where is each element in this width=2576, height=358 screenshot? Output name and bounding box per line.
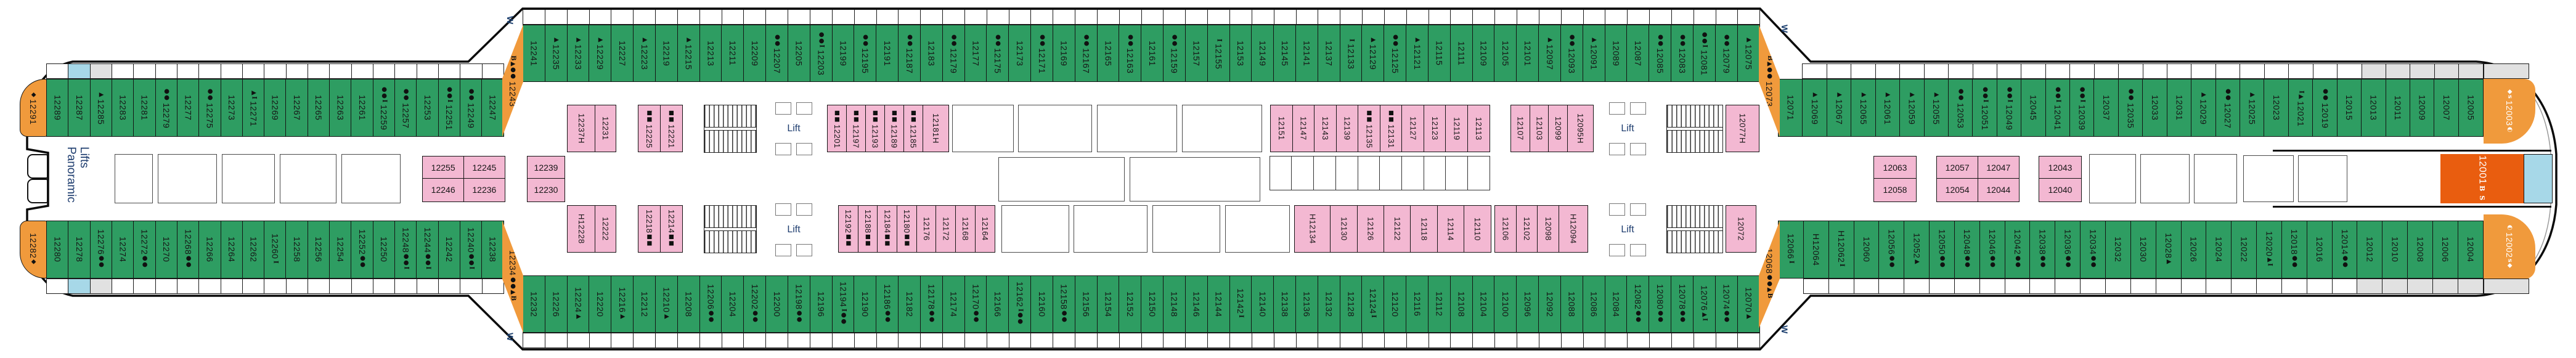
cabin-12035[interactable]: ●●12035 xyxy=(2118,79,2143,137)
cabin-12214[interactable]: 12214■■ xyxy=(660,205,683,253)
cabin-12056[interactable]: 12056●● xyxy=(1878,221,1904,279)
cabin-12248[interactable]: 12248●●Ⅰ xyxy=(394,221,417,279)
cabin-symbols: ■■ xyxy=(853,110,859,123)
cabin-12024[interactable]: 12024 xyxy=(2206,221,2232,279)
cabin-12129[interactable]: ▲12129 xyxy=(1361,25,1384,82)
cabin-12054[interactable]: 12054 xyxy=(1936,178,1978,202)
cabin-12095[interactable]: 12095H xyxy=(1567,105,1594,152)
cabin-12001[interactable]: 12001B S xyxy=(2440,154,2524,203)
cabin-12256[interactable]: 12256 xyxy=(308,221,330,279)
cabin-12091[interactable]: ▲12091 xyxy=(1583,25,1605,82)
balcony-cell xyxy=(1075,9,1098,25)
cabin-12122[interactable]: 12122 xyxy=(1384,205,1411,253)
cabin-12246[interactable]: 12246 xyxy=(422,178,464,202)
cabin-12102[interactable]: 12102 xyxy=(1516,205,1538,253)
cabin-12101[interactable]: 12101 xyxy=(1516,25,1539,82)
cabin-12080[interactable]: 12080●● xyxy=(1649,275,1671,333)
cabin-12098[interactable]: 12098 xyxy=(1537,205,1559,253)
cabin-12283[interactable]: 12283 xyxy=(112,79,134,137)
cabin-12263[interactable]: 12263 xyxy=(329,79,352,137)
cabin-12155[interactable]: Ⅰ12155 xyxy=(1207,25,1230,82)
cabin-12022[interactable]: 12022 xyxy=(2231,221,2257,279)
cabin-12275[interactable]: ●●12275 xyxy=(198,79,221,137)
cabin-12271[interactable]: ▲Ⅰ12271 xyxy=(242,79,265,137)
cabin-12053[interactable]: ●●12053 xyxy=(1948,79,1973,137)
cabin-12178[interactable]: 12178●● xyxy=(920,275,943,333)
cabin-12141[interactable]: 12141 xyxy=(1295,25,1318,82)
cabin-12171[interactable]: ●●12171 xyxy=(1030,25,1053,82)
cabin-number: 12169 xyxy=(1060,41,1069,66)
cabin-12264[interactable]: 12264 xyxy=(221,221,243,279)
cabin-12127[interactable]: 12127 xyxy=(1401,105,1424,152)
cabin-12134[interactable]: H12134 xyxy=(1294,205,1331,253)
cabin-12135[interactable]: ■■12135 xyxy=(1358,105,1380,152)
cabin-12173[interactable]: 12173 xyxy=(1008,25,1031,82)
cabin-12109[interactable]: 12109 xyxy=(1472,25,1495,82)
cabin-12046[interactable]: 12046●● xyxy=(1979,221,2005,279)
cabin-12026[interactable]: 12026 xyxy=(2181,221,2207,279)
cabin-12061[interactable]: ▲12061 xyxy=(1875,79,1901,137)
cabin-12020[interactable]: 12020▲Ⅰ xyxy=(2256,221,2282,279)
cabin-12034[interactable]: 12034●● xyxy=(2080,221,2106,279)
balcony-cell xyxy=(351,279,374,294)
cabin-12113[interactable]: 12113 xyxy=(1467,105,1490,152)
cabin-12082[interactable]: 12082●● xyxy=(1626,275,1649,333)
cabin-12031[interactable]: 12031 xyxy=(2167,79,2192,137)
cabin-12004[interactable]: 12004 xyxy=(2458,221,2484,279)
cabin-12118[interactable]: 12118 xyxy=(1410,205,1438,253)
cabin-12131[interactable]: ■■12131 xyxy=(1380,105,1403,152)
cabin-12272[interactable]: 12272●● xyxy=(133,221,156,279)
cabin-12018[interactable]: 12018●● xyxy=(2281,221,2307,279)
cabin-12049[interactable]: ●●Ⅰ12049 xyxy=(1997,79,2022,137)
cabin-12257[interactable]: ●●12257 xyxy=(394,79,417,137)
cabin-12185[interactable]: ■■12185 xyxy=(903,105,924,152)
cabin-12009[interactable]: 12009 xyxy=(2410,79,2435,137)
cabin-12078[interactable]: 12078●● xyxy=(1671,275,1694,333)
cabin-12066[interactable]: 12066Ⅰ xyxy=(1778,221,1804,279)
cabin-12215[interactable]: ▲12215 xyxy=(677,25,700,82)
cabin-symbols: ▲ xyxy=(1591,38,1597,43)
cabin-12149[interactable]: 12149 xyxy=(1251,25,1274,82)
cabin-12076[interactable]: 12076▲Ⅰ xyxy=(1693,275,1716,333)
cabin-12038[interactable]: 12038●● xyxy=(2029,221,2055,279)
cabin-12154[interactable]: 12154 xyxy=(1097,275,1120,333)
cabin-12084[interactable]: 12084 xyxy=(1605,275,1628,333)
cabin-12048[interactable]: 12048●● xyxy=(1954,221,1980,279)
cabin-12045[interactable]: 12045 xyxy=(2021,79,2046,137)
cabin-12036[interactable]: 12036●● xyxy=(2055,221,2081,279)
cabin-12216[interactable]: 12216▲ xyxy=(611,275,634,333)
cabin-12143[interactable]: 12143 xyxy=(1314,105,1337,152)
cabin-12062[interactable]: H12062Ⅰ xyxy=(1828,221,1854,279)
cabin-12261[interactable]: 12261 xyxy=(351,79,373,137)
cabin-12144[interactable]: 12144 xyxy=(1207,275,1230,333)
cabin-12085[interactable]: ●●12085 xyxy=(1649,25,1671,82)
cabin-number: 12249 xyxy=(467,103,475,128)
cabin-12176[interactable]: 12176 xyxy=(916,205,937,253)
cabin-number: 12016 xyxy=(2315,237,2324,262)
cabin-12192[interactable]: 12192■■ xyxy=(838,205,858,253)
cabin-12205[interactable]: 12205 xyxy=(788,25,810,82)
cabin-12086[interactable]: 12086 xyxy=(1583,275,1605,333)
balcony-cell xyxy=(942,9,965,25)
cabin-12052[interactable]: 12052▲ xyxy=(1904,221,1930,279)
cabin-12266[interactable]: 12266 xyxy=(198,221,221,279)
cabin-12244[interactable]: 12244●●Ⅰ xyxy=(416,221,439,279)
cabin-12103[interactable]: 12103 xyxy=(1530,105,1549,152)
cabin-12060[interactable]: 12060 xyxy=(1854,221,1880,279)
cabin-12269[interactable]: 12269 xyxy=(264,79,287,137)
cabin-12219[interactable]: 12219 xyxy=(655,25,678,82)
cabin-12231[interactable]: 12231 xyxy=(595,105,616,152)
cabin-12179[interactable]: ●●12179 xyxy=(942,25,965,82)
cabin-12187[interactable]: ●●12187 xyxy=(898,25,921,82)
cabin-12043[interactable]: 12043 xyxy=(2039,156,2082,179)
cabin-12175[interactable]: ●●12175 xyxy=(986,25,1009,82)
cabin-12040[interactable]: 12040 xyxy=(2039,178,2082,202)
cabin-12093[interactable]: ●●12093 xyxy=(1560,25,1583,82)
cabin-12096[interactable]: 12096 xyxy=(1516,275,1539,333)
cabin-12092[interactable]: 12092 xyxy=(1538,275,1561,333)
cabin-12152[interactable]: 12152 xyxy=(1119,275,1141,333)
cabin-12074[interactable]: 12074●● xyxy=(1715,275,1738,333)
cabin-12148[interactable]: 12148 xyxy=(1163,275,1186,333)
cabin-12268[interactable]: 12268●● xyxy=(177,221,200,279)
cabin-12033[interactable]: 12033 xyxy=(2142,79,2167,137)
cabin-12100[interactable]: 12100 xyxy=(1494,275,1517,333)
cabin-12158[interactable]: 12158●● xyxy=(1053,275,1075,333)
cabin-12124[interactable]: 12124Ⅰ xyxy=(1361,275,1384,333)
cabin-12156[interactable]: 12156 xyxy=(1075,275,1098,333)
cabin-12255[interactable]: 12255 xyxy=(422,156,464,179)
cabin-12177[interactable]: 12177 xyxy=(964,25,987,82)
cabin-12019[interactable]: ●●12019 xyxy=(2312,79,2338,137)
cabin-12172[interactable]: 12172 xyxy=(935,205,956,253)
cabin-12225[interactable]: ■■12225 xyxy=(638,105,661,152)
cabin-12081[interactable]: ●●Ⅰ12081 xyxy=(1693,25,1716,82)
cabin-12254[interactable]: 12254 xyxy=(329,221,352,279)
cabin-12210[interactable]: 12210▲ xyxy=(655,275,678,333)
cabin-12260[interactable]: 12260Ⅰ xyxy=(264,221,287,279)
cabin-12169[interactable]: 12169 xyxy=(1053,25,1075,82)
cabin-12226[interactable]: 12226 xyxy=(545,275,568,333)
cabin-12180[interactable]: 12180■■ xyxy=(897,205,917,253)
cabin-12041[interactable]: ●●Ⅰ12041 xyxy=(2045,79,2071,137)
cabin-number: 12035 xyxy=(2126,103,2135,128)
cabin-12104[interactable]: 12104 xyxy=(1472,275,1495,333)
cabin-12064[interactable]: H12064 xyxy=(1803,221,1829,279)
cabin-12224[interactable]: 12224▲ xyxy=(567,275,590,333)
cabin-12209[interactable]: 12209 xyxy=(743,25,766,82)
cabin-12044[interactable]: 12044 xyxy=(1978,178,2020,202)
balcony-cell xyxy=(1694,333,1716,348)
cabin-12274[interactable]: 12274 xyxy=(112,221,134,279)
cabin-12050[interactable]: 12050●● xyxy=(1929,221,1955,279)
cabin-12010[interactable]: 12010 xyxy=(2382,221,2408,279)
cabin-12015[interactable]: 12015 xyxy=(2337,79,2362,137)
cabin-12065[interactable]: ▲12065 xyxy=(1851,79,1876,137)
cabin-12153[interactable]: 12153 xyxy=(1229,25,1252,82)
cabin-12167[interactable]: ●●12167 xyxy=(1075,25,1098,82)
cabin-12170[interactable]: 12170●● xyxy=(964,275,987,333)
cabin-number: 12253 xyxy=(423,95,432,120)
cabin-12027[interactable]: ●●12027 xyxy=(2215,79,2241,137)
cabin-12072[interactable]: 12072 xyxy=(1726,205,1756,253)
cabin-12206[interactable]: 12206●● xyxy=(699,275,722,333)
cabin-number: 12268 xyxy=(184,229,192,254)
cabin-12110[interactable]: 12110 xyxy=(1464,205,1491,253)
balcony-cell xyxy=(898,333,921,348)
cabin-12139[interactable]: 12139 xyxy=(1336,105,1359,152)
cabin-12105[interactable]: 12105 xyxy=(1494,25,1517,82)
cabin-12207[interactable]: ●●12207 xyxy=(765,25,788,82)
cabin-12182[interactable]: 12182 xyxy=(898,275,921,333)
cabin-12249[interactable]: ●●12249 xyxy=(460,79,483,137)
cabin-12088[interactable]: 12088 xyxy=(1560,275,1583,333)
cabin-12164[interactable]: 12164 xyxy=(975,205,995,253)
cabin-12151[interactable]: 12151 xyxy=(1270,105,1293,152)
cabin-12241[interactable]: 12241 xyxy=(523,25,545,82)
cabin-12189[interactable]: ■■12189 xyxy=(884,105,905,152)
cabin-12116[interactable]: 12116 xyxy=(1406,275,1429,333)
cabin-12063[interactable]: 12063 xyxy=(1873,156,1917,179)
cabin-12174[interactable]: 12174 xyxy=(942,275,965,333)
cabin-12140[interactable]: 12140 xyxy=(1251,275,1274,333)
cabin-12265[interactable]: 12265 xyxy=(308,79,330,137)
cabin-12058[interactable]: 12058 xyxy=(1873,178,1917,202)
cabin-12245[interactable]: 12245 xyxy=(463,156,505,179)
cabin-12233[interactable]: ▲12233 xyxy=(567,25,590,82)
cabin-12181[interactable]: 12181H xyxy=(923,105,949,152)
cabin-12147[interactable]: 12147 xyxy=(1292,105,1315,152)
cabin-12030[interactable]: 12030 xyxy=(2130,221,2156,279)
cabin-12136[interactable]: 12136 xyxy=(1295,275,1318,333)
cabin-12166[interactable]: 12166 xyxy=(986,275,1009,333)
cabin-12083[interactable]: ●●12083 xyxy=(1671,25,1694,82)
cabin-12201[interactable]: ■■12201 xyxy=(827,105,847,152)
cabin-12229[interactable]: ▲12229 xyxy=(589,25,611,82)
cabin-12236[interactable]: 12236 xyxy=(463,178,505,202)
cabin-12232[interactable]: 12232 xyxy=(523,275,545,333)
cabin-12160[interactable]: 12160 xyxy=(1030,275,1053,333)
cabin-number: 12215 xyxy=(685,44,693,70)
cabin-12089[interactable]: 12089 xyxy=(1605,25,1628,82)
cabin-12197[interactable]: ■■12197 xyxy=(846,105,866,152)
cabin-12289[interactable]: 12289 xyxy=(46,79,69,137)
cabin-12262[interactable]: 12262 xyxy=(242,221,265,279)
cabin-12202[interactable]: 12202●● xyxy=(743,275,766,333)
cabin-12247[interactable]: 12247 xyxy=(481,79,504,137)
cabin-12094[interactable]: H12094 xyxy=(1559,205,1588,253)
cabin-12190[interactable]: 12190 xyxy=(854,275,876,333)
cabin-12130[interactable]: 12130 xyxy=(1330,205,1358,253)
cabin-12287[interactable]: 12287 xyxy=(68,79,91,137)
cabin-number: 12059 xyxy=(1908,99,1917,124)
cabin-12196[interactable]: 12196 xyxy=(810,275,833,333)
cabin-12221[interactable]: ■■12221 xyxy=(660,105,683,152)
cabin-12037[interactable]: 12037 xyxy=(2093,79,2119,137)
cabin-12097[interactable]: ▲12097 xyxy=(1538,25,1561,82)
cabin-12071[interactable]: 12071 xyxy=(1778,79,1803,137)
cabin-12150[interactable]: 12150 xyxy=(1141,275,1164,333)
cabin-12059[interactable]: ▲12059 xyxy=(1899,79,1925,137)
cabin-number: 12020 xyxy=(2265,231,2273,256)
cabin-12126[interactable]: 12126 xyxy=(1357,205,1385,253)
cabin-12198[interactable]: 12198●● xyxy=(788,275,810,333)
cabin-symbols: ●● xyxy=(1657,311,1663,323)
cabin-12108[interactable]: 12108 xyxy=(1450,275,1473,333)
cabin-12106[interactable]: 12106 xyxy=(1494,205,1517,253)
cabin-12128[interactable]: 12128 xyxy=(1340,275,1363,333)
cabin-12057[interactable]: 12057 xyxy=(1936,156,1978,179)
cabin-12203[interactable]: ●●Ⅰ12203 xyxy=(810,25,833,82)
cabin-12213[interactable]: 12213 xyxy=(699,25,722,82)
cabin-12194[interactable]: 12194Ⅰ●● xyxy=(832,275,855,333)
cabin-12014[interactable]: 12014●● xyxy=(2332,221,2358,279)
cabin-number: 12195 xyxy=(861,48,870,73)
cabin-12159[interactable]: ●●12159 xyxy=(1163,25,1186,82)
cabin-12276[interactable]: 12276●● xyxy=(90,221,113,279)
cabin-12114[interactable]: 12114 xyxy=(1437,205,1465,253)
cabin-12107[interactable]: 12107 xyxy=(1510,105,1530,152)
cabin-12253[interactable]: 12253 xyxy=(416,79,439,137)
cabin-12195[interactable]: ●●12195 xyxy=(854,25,876,82)
cabin-12281[interactable]: 12281 xyxy=(133,79,156,137)
cabin-12021[interactable]: Ⅰ▲12021 xyxy=(2288,79,2313,137)
cabin-12132[interactable]: 12132 xyxy=(1318,275,1340,333)
cabin-12258[interactable]: 12258 xyxy=(285,221,308,279)
cabin-12212[interactable]: 12212 xyxy=(633,275,656,333)
cabin-12138[interactable]: 12138 xyxy=(1273,275,1296,333)
cabin-12029[interactable]: ▲12029 xyxy=(2191,79,2216,137)
cabin-12006[interactable]: 12006 xyxy=(2432,221,2458,279)
cabin-12252[interactable]: 12252●● xyxy=(351,221,373,279)
cabin-12070[interactable]: 12070▲ xyxy=(1737,275,1760,333)
cabin-12277[interactable]: 12277 xyxy=(177,79,200,137)
cabin-12186[interactable]: 12186●● xyxy=(876,275,899,333)
cabin-12168[interactable]: 12168 xyxy=(955,205,976,253)
cabin-12238[interactable]: 12238 xyxy=(481,221,504,279)
cabin-12039[interactable]: ●●Ⅰ12039 xyxy=(2069,79,2095,137)
cabin-12023[interactable]: 12023 xyxy=(2264,79,2289,137)
stairs-icon xyxy=(704,205,757,253)
cabin-12042[interactable]: 12042●● xyxy=(2005,221,2031,279)
cabin-12228[interactable]: H12228 xyxy=(567,205,596,253)
cabin-12069[interactable]: ▲12069 xyxy=(1802,79,1827,137)
balcony-cell xyxy=(1163,9,1186,25)
cabin-12157[interactable]: 12157 xyxy=(1185,25,1208,82)
cabin-12220[interactable]: 12220 xyxy=(589,275,611,333)
cabin-12146[interactable]: 12146 xyxy=(1185,275,1208,333)
cabin-12121[interactable]: ▲12121 xyxy=(1406,25,1429,82)
cabin-12032[interactable]: 12032 xyxy=(2105,221,2131,279)
cabin-12099[interactable]: 12099 xyxy=(1548,105,1568,152)
cabin-symbols: ●● xyxy=(1635,311,1641,323)
cabin-12242[interactable]: 12242 xyxy=(438,221,461,279)
cabin-12184[interactable]: 12184■■ xyxy=(877,205,897,253)
cabin-12125[interactable]: ●●12125 xyxy=(1384,25,1406,82)
cabin-12204[interactable]: 12204 xyxy=(721,275,744,333)
cabin-12028[interactable]: 12028▲ xyxy=(2156,221,2182,279)
cabin-12013[interactable]: 12013 xyxy=(2361,79,2386,137)
cabin-12008[interactable]: 12008 xyxy=(2407,221,2433,279)
cabin-12237[interactable]: 12237H xyxy=(567,105,596,152)
balcony-cell xyxy=(2167,63,2192,79)
cabin-12165[interactable]: 12165 xyxy=(1097,25,1120,82)
cabin-12145[interactable]: 12145 xyxy=(1273,25,1296,82)
cabin-12251[interactable]: ●●Ⅰ12251 xyxy=(438,79,461,137)
cabin-12047[interactable]: 12047 xyxy=(1978,156,2020,179)
cabin-12055[interactable]: ▲12055 xyxy=(1924,79,1949,137)
cabin-12123[interactable]: 12123 xyxy=(1424,105,1446,152)
cabin-12025[interactable]: ▲12025 xyxy=(2240,79,2265,137)
cabin-12239[interactable]: 12239 xyxy=(527,156,565,179)
cabin-12067[interactable]: ▲12067 xyxy=(1827,79,1852,137)
cabin-12133[interactable]: Ⅰ12133 xyxy=(1340,25,1363,82)
cabin-12208[interactable]: 12208 xyxy=(677,275,700,333)
cabin-12211[interactable]: 12211 xyxy=(721,25,744,82)
cabin-12012[interactable]: 12012 xyxy=(2357,221,2382,279)
cabin-12223[interactable]: ▲12223 xyxy=(633,25,656,82)
cabin-12051[interactable]: ●●Ⅰ12051 xyxy=(1972,79,1997,137)
cabin-12193[interactable]: ■■12193 xyxy=(865,105,886,152)
cabin-12111[interactable]: 12111 xyxy=(1450,25,1473,82)
cabin-12183[interactable]: 12183 xyxy=(920,25,943,82)
cabin-12279[interactable]: ●●12279 xyxy=(155,79,178,137)
cabin-number: 12134 xyxy=(1308,220,1316,244)
cabin-12137[interactable]: 12137 xyxy=(1318,25,1340,82)
cabin-12163[interactable]: ●●12163 xyxy=(1119,25,1141,82)
cabin-12200[interactable]: 12200 xyxy=(765,275,788,333)
cabin-12222[interactable]: 12222 xyxy=(595,205,616,253)
cabin-12005[interactable]: 12005 xyxy=(2458,79,2484,137)
cabin-number: 12247 xyxy=(489,95,497,120)
cabin-12270[interactable]: 12270 xyxy=(155,221,178,279)
cabin-12259[interactable]: ●●Ⅰ12259 xyxy=(373,79,396,137)
cabin-12240[interactable]: 12240●●Ⅰ xyxy=(460,221,483,279)
cabin-12199[interactable]: 12199 xyxy=(832,25,855,82)
cabin-12115[interactable]: 12115 xyxy=(1428,25,1451,82)
cabin-12011[interactable]: 12011 xyxy=(2386,79,2411,137)
cabin-12142[interactable]: 12142Ⅰ xyxy=(1229,275,1252,333)
cabin-12188[interactable]: 12188■■ xyxy=(858,205,878,253)
cabin-number: 12165 xyxy=(1104,41,1112,66)
cabin-12278[interactable]: 12278 xyxy=(68,221,91,279)
cabin-12075[interactable]: ▲12075 xyxy=(1737,25,1760,82)
cabin-12273[interactable]: 12273 xyxy=(221,79,243,137)
cabin-12191[interactable]: 12191 xyxy=(876,25,899,82)
cabin-12112[interactable]: 12112 xyxy=(1428,275,1451,333)
cabin-12077[interactable]: 12077H xyxy=(1726,105,1759,152)
cabin-12162[interactable]: 12162Ⅰ●● xyxy=(1008,275,1031,333)
cabin-12230[interactable]: 12230 xyxy=(527,178,565,202)
cabin-12120[interactable]: 12120 xyxy=(1384,275,1406,333)
cabin-12007[interactable]: 12007 xyxy=(2434,79,2459,137)
cabin-12235[interactable]: ▲12235 xyxy=(545,25,568,82)
cabin-12218[interactable]: 12218■■ xyxy=(638,205,661,253)
cabin-12119[interactable]: 12119 xyxy=(1445,105,1468,152)
cabin-12285[interactable]: ▲12285 xyxy=(90,79,113,137)
cabin-12267[interactable]: 12267 xyxy=(285,79,308,137)
cabin-12016[interactable]: 12016 xyxy=(2307,221,2333,279)
cabin-12280[interactable]: 12280 xyxy=(46,221,69,279)
cabin-12161[interactable]: 12161 xyxy=(1141,25,1164,82)
cabin-12087[interactable]: 12087 xyxy=(1626,25,1649,82)
cabin-12079[interactable]: ●●12079 xyxy=(1715,25,1738,82)
cabin-12250[interactable]: 12250 xyxy=(373,221,396,279)
cabin-12227[interactable]: 12227 xyxy=(611,25,634,82)
